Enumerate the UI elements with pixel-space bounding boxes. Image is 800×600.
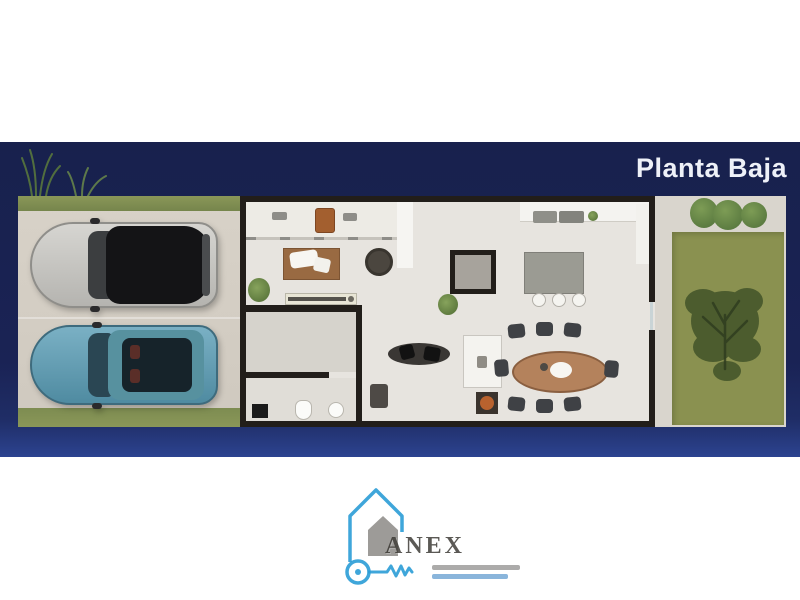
watermark-tagline-bar [432,565,520,570]
watermark-tagline-bar [432,574,508,579]
teal-car-mirror [92,322,102,328]
hall-cabinet [370,384,388,408]
silver-car-mirror [90,306,100,312]
island-stool [532,293,546,307]
dining-chair [494,359,509,377]
page: Planta Baja [0,0,800,600]
bathroom-sink [328,402,344,418]
terrace-planter [272,212,287,220]
watermark-brand-text: ANEX [385,533,465,560]
dining-chair [507,323,525,339]
banner: Planta Baja [0,142,800,457]
kitchen-sink [559,211,584,223]
hallway-plant [438,294,458,315]
bush [741,202,767,228]
garden-sliding-door [650,302,653,330]
driveway-joint-line [18,317,240,319]
hallway-chair [423,346,441,363]
dining-chair [536,322,553,336]
wall [243,372,329,378]
teal-car [30,325,218,405]
dining-chair [507,396,525,412]
dining-chair [563,322,581,338]
floor-plan [18,196,786,427]
wall [240,196,655,202]
teal-car-mirror [92,403,102,409]
wall [356,305,362,372]
console-decor [348,296,354,302]
stair-patio [246,312,356,372]
grass-strip-bottom [18,408,240,427]
entry-partition-wall [397,196,413,268]
kitchen-island [524,252,584,294]
silver-car [30,222,218,308]
living-room-plant [248,278,270,302]
house [240,196,655,427]
dining-chair [536,399,553,413]
pantry-closet [450,250,496,294]
teal-car-seat [130,345,140,359]
desk-chair [477,356,487,368]
grass-strip-top [18,196,240,211]
driveway [18,196,240,427]
tall-cabinet [636,204,649,264]
island-stool [552,293,566,307]
dining-chair [604,360,619,378]
sofa-cushion [313,256,332,273]
terrace-planter [343,213,357,221]
grass-tuft-decoration [18,146,118,196]
stove [533,211,557,223]
wall [356,372,362,427]
silver-car-mirror [90,218,100,224]
bush [713,200,743,230]
side-table-top [480,396,494,410]
silver-car-roof [106,226,210,304]
page-title: Planta Baja [636,153,787,184]
pantry-closet-floor [455,255,491,289]
tree-icon [673,251,783,411]
counter-plant [588,211,598,221]
tv [288,297,346,301]
hallway-rug [388,343,450,365]
table-decor [540,363,548,371]
wall [240,305,362,312]
dining-chair [563,396,581,412]
sliding-door [246,237,397,240]
teal-car-seat [130,369,140,383]
wall [240,421,655,427]
toilet [295,400,312,420]
island-stool [572,293,586,307]
round-armchair [365,248,393,276]
terrace-lounge-chair [315,208,335,233]
silver-car-rear-window [202,234,210,296]
watermark-logo: ANEX [335,478,535,593]
bathroom-mat [252,404,268,418]
table-centerpiece [550,362,572,378]
garden [655,196,786,427]
